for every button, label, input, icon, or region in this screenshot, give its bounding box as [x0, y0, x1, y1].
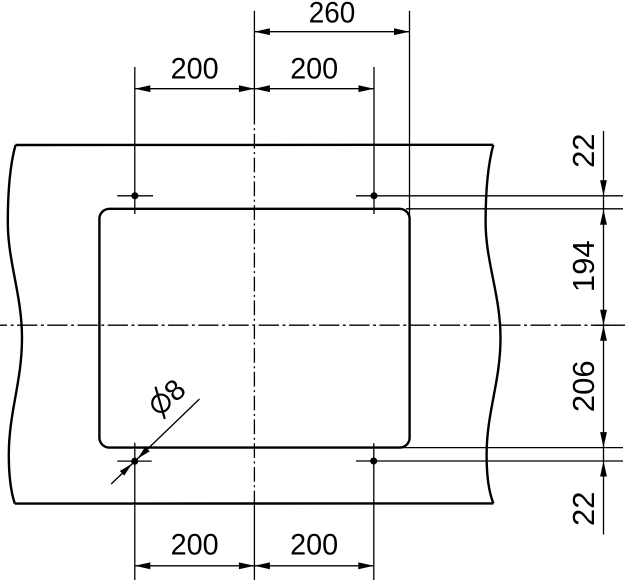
- svg-text:22: 22: [566, 133, 601, 167]
- svg-text:200: 200: [171, 528, 219, 561]
- svg-text:200: 200: [171, 53, 219, 86]
- svg-text:206: 206: [566, 360, 601, 412]
- svg-text:200: 200: [290, 528, 338, 561]
- svg-text:194: 194: [566, 240, 601, 292]
- svg-text:260: 260: [309, 0, 356, 30]
- svg-text:22: 22: [566, 492, 601, 526]
- svg-text:200: 200: [290, 53, 338, 86]
